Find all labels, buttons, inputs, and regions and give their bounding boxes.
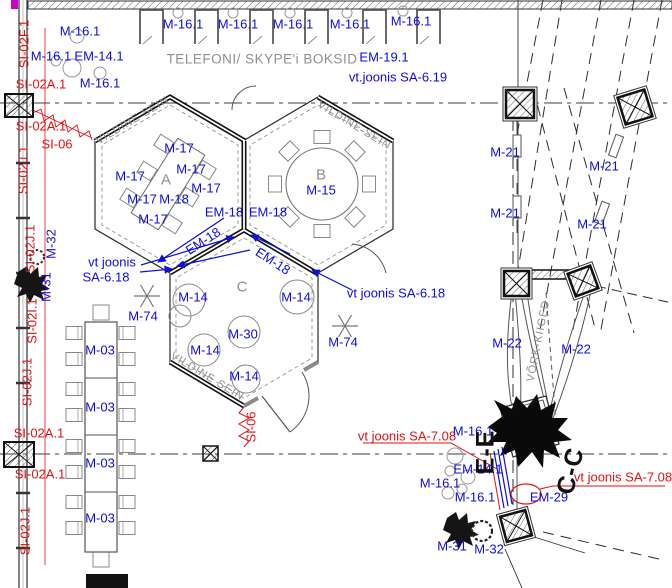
lamp-symbols (513, 120, 624, 233)
column-icon (501, 268, 532, 299)
column-icon (564, 262, 602, 300)
furniture (66, 131, 376, 568)
floor-plan: M-16.1 M-16.1 EM-14.1 M-16.1 SI-02A.1 SI… (0, 0, 672, 588)
wall-segment (86, 574, 128, 588)
column-icon (496, 506, 535, 545)
long-table (66, 305, 135, 567)
column-icon (203, 446, 218, 461)
door-arc (244, 362, 318, 432)
coat-stand-icon (134, 285, 358, 337)
cable-lines (494, 447, 512, 508)
column-icon (4, 442, 34, 467)
column-icon (5, 94, 33, 117)
column-icon (503, 87, 537, 121)
small-circles (51, 29, 475, 499)
round-table (286, 148, 358, 220)
beanbag-splat (488, 394, 572, 468)
plan-linework (0, 0, 672, 588)
phone-booths (140, 6, 440, 44)
beanbag-area (488, 394, 572, 508)
hexagon-pods (95, 86, 393, 432)
column-icon (614, 86, 656, 128)
wall-marker (11, 0, 18, 9)
net-swings (507, 270, 591, 510)
